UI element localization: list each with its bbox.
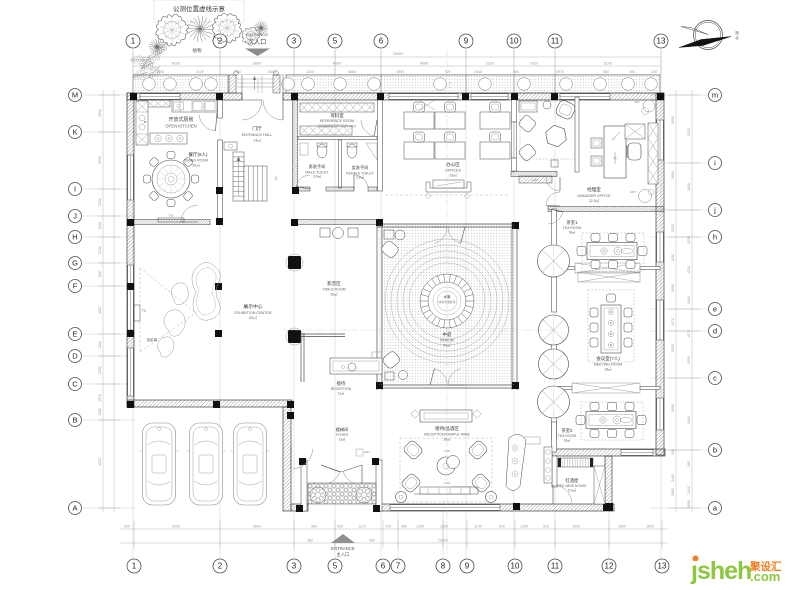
svg-text:1200: 1200: [306, 70, 314, 74]
svg-text:1910: 1910: [98, 394, 102, 402]
svg-text:RECEPTION: RECEPTION: [331, 387, 352, 391]
svg-text:主入口: 主入口: [337, 551, 350, 557]
svg-text:3300: 3300: [687, 128, 691, 136]
svg-text:10: 10: [510, 37, 519, 46]
svg-text:楼梯间: 楼梯间: [336, 426, 349, 433]
svg-text:2230: 2230: [671, 224, 675, 232]
svg-text:会议室(7人): 会议室(7人): [596, 355, 620, 362]
svg-text:560: 560: [603, 70, 609, 74]
svg-text:13: 13: [658, 562, 667, 571]
svg-text:TV: TV: [169, 214, 174, 218]
svg-text:1: 1: [132, 562, 137, 571]
svg-text:B: B: [72, 416, 77, 425]
svg-text:460: 460: [401, 525, 407, 529]
svg-text:展示中心: 展示中心: [243, 303, 262, 310]
svg-text:3.6㎡: 3.6㎡: [356, 175, 365, 180]
svg-text:5: 5: [333, 562, 338, 571]
svg-text:接待/品酒区: 接待/品酒区: [435, 425, 459, 432]
svg-text:MANAGER OFFICE: MANAGER OFFICE: [577, 194, 611, 198]
svg-text:11㎡: 11㎡: [338, 391, 345, 396]
svg-text:2500: 2500: [646, 525, 654, 529]
svg-text:2680: 2680: [687, 500, 691, 508]
svg-text:3800: 3800: [253, 62, 261, 66]
svg-text:2230: 2230: [687, 236, 691, 244]
svg-text:1230: 1230: [687, 266, 691, 274]
svg-text:620: 620: [543, 525, 549, 529]
svg-text:FOYER: FOYER: [336, 433, 349, 437]
svg-text:b: b: [713, 446, 717, 455]
svg-text:投影幕: 投影幕: [147, 337, 158, 342]
svg-text:490: 490: [629, 70, 635, 74]
svg-text:630: 630: [337, 525, 343, 529]
svg-text:1280: 1280: [440, 525, 448, 529]
svg-text:DINING ROOM: DINING ROOM: [184, 159, 209, 163]
svg-text:3460: 3460: [687, 183, 691, 191]
svg-text:240: 240: [651, 70, 657, 74]
svg-text:北: 北: [735, 35, 739, 40]
svg-text:男洗手间: 男洗手间: [309, 163, 326, 170]
svg-text:18㎡: 18㎡: [564, 438, 572, 443]
svg-text:54㎡: 54㎡: [443, 343, 451, 348]
svg-text:ENTRANCE: ENTRANCE: [246, 32, 268, 37]
svg-text:1680: 1680: [98, 408, 102, 416]
svg-text:2452: 2452: [98, 366, 102, 374]
svg-text:5100: 5100: [604, 62, 612, 66]
svg-text:1920: 1920: [530, 62, 538, 66]
svg-text:4660: 4660: [348, 70, 356, 74]
svg-text:11: 11: [551, 37, 560, 46]
svg-text:K: K: [72, 128, 77, 137]
svg-text:4500: 4500: [98, 109, 102, 117]
svg-text:2140: 2140: [98, 246, 102, 254]
svg-text:1200: 1200: [416, 525, 424, 529]
svg-text:3.6㎡: 3.6㎡: [313, 174, 322, 179]
svg-text:E: E: [72, 330, 77, 339]
svg-text:9: 9: [464, 37, 469, 46]
svg-text:活动区地毯下有下沉式 4.5㎡: 活动区地毯下有下沉式 4.5㎡: [318, 123, 356, 128]
svg-text:18㎡: 18㎡: [604, 367, 612, 372]
svg-text:5: 5: [333, 37, 338, 46]
svg-text:2390: 2390: [687, 356, 691, 364]
svg-text:4200: 4200: [172, 62, 180, 66]
svg-text:2320: 2320: [486, 62, 494, 66]
svg-text:3460: 3460: [671, 404, 675, 412]
svg-text:3527: 3527: [98, 306, 102, 314]
svg-text:m: m: [712, 91, 718, 100]
svg-text:3460: 3460: [687, 416, 691, 424]
svg-text:C: C: [72, 380, 78, 389]
svg-text:M: M: [72, 91, 78, 100]
svg-text:H: H: [72, 233, 77, 242]
svg-text:2440: 2440: [687, 486, 691, 494]
svg-text:OPEN KITCHEN: OPEN KITCHEN: [165, 124, 196, 129]
svg-text:360: 360: [369, 539, 375, 543]
svg-text:2440: 2440: [671, 474, 675, 482]
svg-text:2: 2: [218, 562, 223, 571]
svg-text:3: 3: [292, 562, 297, 571]
svg-text:13: 13: [657, 37, 666, 46]
svg-text:12: 12: [605, 562, 614, 571]
svg-text:TEA ROOM: TEA ROOM: [563, 226, 582, 230]
svg-text:3460: 3460: [687, 296, 691, 304]
svg-text:1: 1: [131, 37, 136, 46]
svg-text:25900: 25900: [393, 52, 404, 56]
svg-text:39㎡: 39㎡: [443, 437, 451, 442]
svg-text:I: I: [74, 185, 76, 194]
svg-text:1847: 1847: [98, 270, 102, 278]
svg-text:18㎡: 18㎡: [569, 230, 577, 235]
svg-text:聚设汇: 聚设汇: [749, 560, 782, 573]
svg-text:240: 240: [124, 525, 130, 529]
svg-text:11: 11: [551, 562, 560, 571]
svg-text:720: 720: [385, 525, 391, 529]
svg-text:植物: 植物: [193, 47, 202, 54]
svg-text:TEA ROOM: TEA ROOM: [558, 434, 577, 438]
svg-text:ART: ART: [634, 100, 640, 104]
svg-text:520: 520: [445, 70, 451, 74]
svg-text:j: j: [713, 206, 716, 215]
svg-text:6: 6: [379, 37, 384, 46]
svg-text:RECEPTION/SAMPLE WINE: RECEPTION/SAMPLE WINE: [424, 433, 470, 437]
svg-text:MEETING ROOM: MEETING ROOM: [594, 363, 623, 367]
svg-text:1920: 1920: [572, 525, 580, 529]
svg-text:2930: 2930: [98, 156, 102, 164]
svg-text:门厅: 门厅: [252, 125, 262, 132]
svg-text:2390: 2390: [671, 344, 675, 352]
svg-text:上: 上: [274, 174, 278, 180]
svg-text:1140: 1140: [474, 525, 482, 529]
svg-text:7: 7: [396, 562, 401, 571]
svg-text:ENTRANCE: ENTRANCE: [331, 546, 355, 551]
svg-text:jsheh: jsheh: [690, 557, 751, 585]
svg-text:ART: ART: [630, 190, 636, 194]
svg-text:F: F: [73, 282, 78, 291]
svg-text:开放式厨房: 开放式厨房: [168, 116, 193, 123]
svg-text:4080: 4080: [420, 62, 428, 66]
svg-text:6: 6: [381, 562, 386, 571]
svg-text:办公区: 办公区: [446, 161, 460, 168]
svg-text:d: d: [713, 327, 717, 336]
svg-text:餐厅(8人): 餐厅(8人): [189, 151, 209, 158]
svg-text:3460: 3460: [671, 171, 675, 179]
svg-text:1200: 1200: [520, 525, 528, 529]
svg-text:5.9㎡: 5.9㎡: [568, 488, 577, 493]
svg-text:REFERENCE ROOM: REFERENCE ROOM: [320, 119, 354, 123]
svg-text:3460: 3460: [671, 284, 675, 292]
svg-text:1170: 1170: [358, 525, 366, 529]
svg-text:c: c: [713, 374, 717, 383]
svg-text:茶室2: 茶室2: [562, 427, 574, 433]
svg-text:1500: 1500: [396, 70, 404, 74]
svg-text:VIDEO ROOM: VIDEO ROOM: [322, 288, 345, 292]
svg-text:经理室: 经理室: [587, 186, 601, 192]
svg-text:29㎡: 29㎡: [449, 173, 457, 178]
svg-text:1070: 1070: [671, 318, 675, 326]
svg-text:G: G: [72, 259, 78, 268]
svg-text:360: 360: [307, 539, 313, 543]
svg-text:240: 240: [687, 461, 691, 467]
svg-text:960: 960: [311, 525, 317, 529]
svg-text:9: 9: [465, 562, 470, 571]
svg-text:指: 指: [735, 30, 739, 35]
svg-text:e: e: [713, 305, 717, 314]
svg-text:600: 600: [499, 525, 505, 529]
svg-text:1200: 1200: [98, 341, 102, 349]
svg-text:RED WINE HOUSE: RED WINE HOUSE: [557, 484, 587, 488]
svg-text:h: h: [713, 233, 717, 242]
svg-text:4200: 4200: [98, 458, 102, 466]
svg-text:公测位置虚线示意: 公测位置虚线示意: [173, 4, 226, 13]
svg-text:3600: 3600: [253, 525, 261, 529]
svg-text:10: 10: [511, 562, 520, 571]
svg-text:2600: 2600: [618, 525, 626, 529]
svg-text:茶室1: 茶室1: [567, 219, 579, 225]
svg-text:3400: 3400: [268, 70, 276, 74]
svg-text:3300: 3300: [671, 116, 675, 124]
svg-text:2680: 2680: [671, 488, 675, 496]
svg-text:影音区: 影音区: [327, 280, 341, 287]
svg-text:水景: 水景: [443, 294, 451, 299]
svg-text:8: 8: [441, 562, 446, 571]
svg-text:2000: 2000: [98, 198, 102, 206]
svg-text:2120: 2120: [196, 70, 204, 74]
svg-text:接待: 接待: [337, 380, 346, 387]
svg-text:D: D: [72, 352, 78, 361]
svg-text:红酒屋: 红酒屋: [566, 477, 580, 484]
svg-text:13㎡: 13㎡: [339, 437, 347, 442]
svg-text:1640: 1640: [98, 222, 102, 230]
svg-text:女洗手间: 女洗手间: [352, 164, 369, 171]
svg-text:25㎡: 25㎡: [192, 163, 200, 168]
svg-text:39㎡: 39㎡: [330, 292, 338, 297]
svg-text:中庭: 中庭: [443, 331, 452, 338]
svg-text:ENTRANCE HALL: ENTRANCE HALL: [242, 133, 273, 137]
svg-text:OFFICES: OFFICES: [445, 169, 462, 173]
svg-text:1230: 1230: [671, 254, 675, 262]
svg-text:资料室: 资料室: [330, 112, 344, 119]
svg-text:ART: ART: [364, 450, 370, 454]
svg-text:EXHIBITION CENTER: EXHIBITION CENTER: [234, 311, 271, 315]
svg-text:J: J: [73, 212, 77, 221]
svg-text:4200: 4200: [172, 525, 180, 529]
svg-text:1070: 1070: [687, 330, 691, 338]
svg-text:2440: 2440: [474, 70, 482, 74]
svg-text:ART: ART: [532, 178, 538, 182]
svg-text:A: A: [72, 504, 77, 513]
svg-text:2970: 2970: [556, 70, 564, 74]
svg-text:69㎡: 69㎡: [249, 315, 257, 320]
svg-text:4500: 4500: [333, 62, 341, 66]
svg-text:3: 3: [292, 37, 297, 46]
svg-text:32.5㎡: 32.5㎡: [589, 198, 600, 203]
svg-text:2: 2: [218, 37, 223, 46]
svg-text:14㎡: 14㎡: [253, 138, 261, 143]
